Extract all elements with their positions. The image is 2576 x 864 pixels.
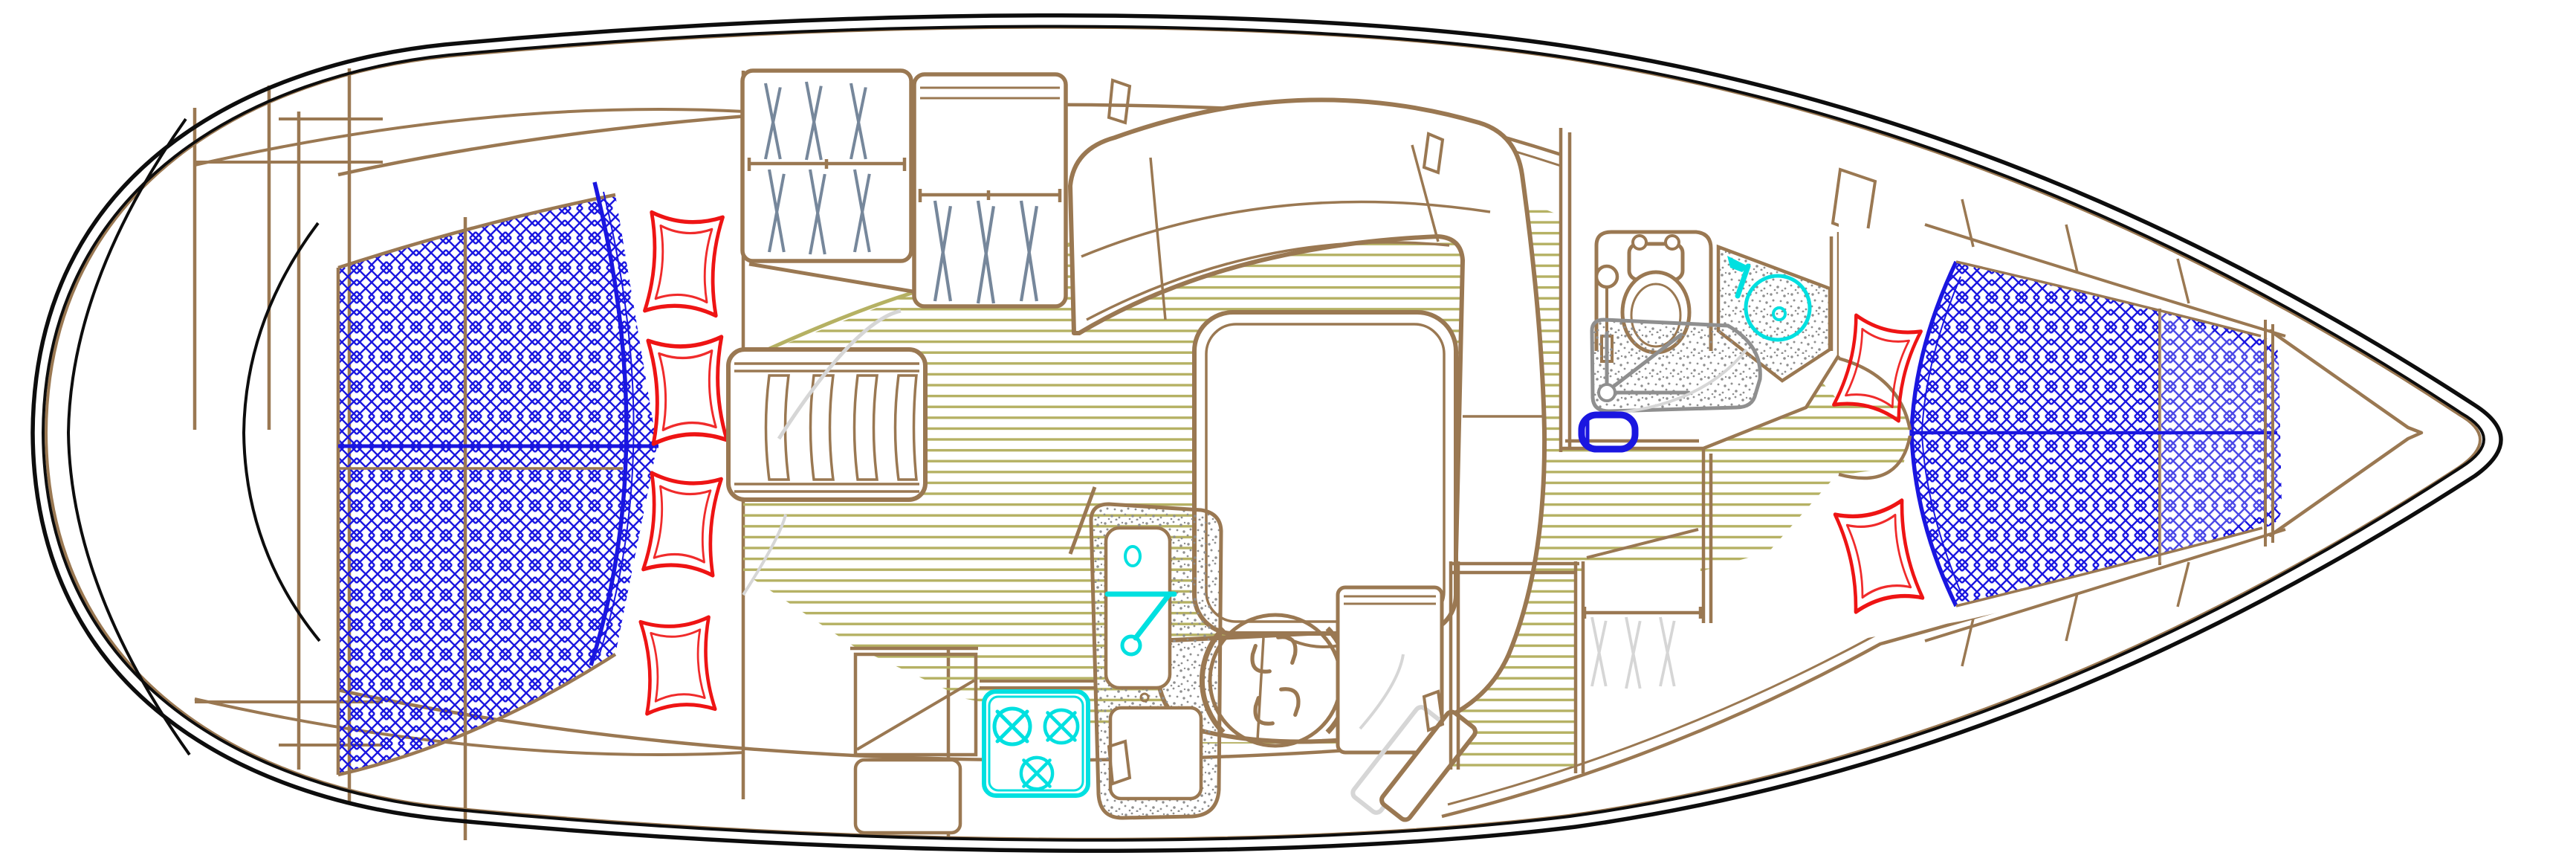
wardrobe-port <box>742 71 913 291</box>
pillow <box>648 337 727 444</box>
island-cabinet <box>1110 708 1201 799</box>
pillow <box>644 473 722 576</box>
shower <box>1592 320 1760 413</box>
galley-sink-island <box>1070 487 1221 818</box>
boat-floorplan-canvas <box>0 0 2576 864</box>
nav-desk <box>1338 587 1442 752</box>
counter-split <box>857 680 974 749</box>
flush-pump <box>1596 266 1617 287</box>
stove <box>980 681 1094 796</box>
wardrobe-port-2 <box>914 74 1066 306</box>
aft-bed-mattress <box>338 195 657 775</box>
berth-shelf-diagonal <box>749 264 913 291</box>
v-berth <box>1834 199 2421 666</box>
pillow <box>641 617 715 714</box>
galley-cabinet <box>855 760 960 833</box>
floorplan-svg <box>0 0 2576 864</box>
wardrobes <box>742 71 1066 306</box>
cockpit-line-top <box>195 109 745 165</box>
pillow <box>644 212 722 315</box>
